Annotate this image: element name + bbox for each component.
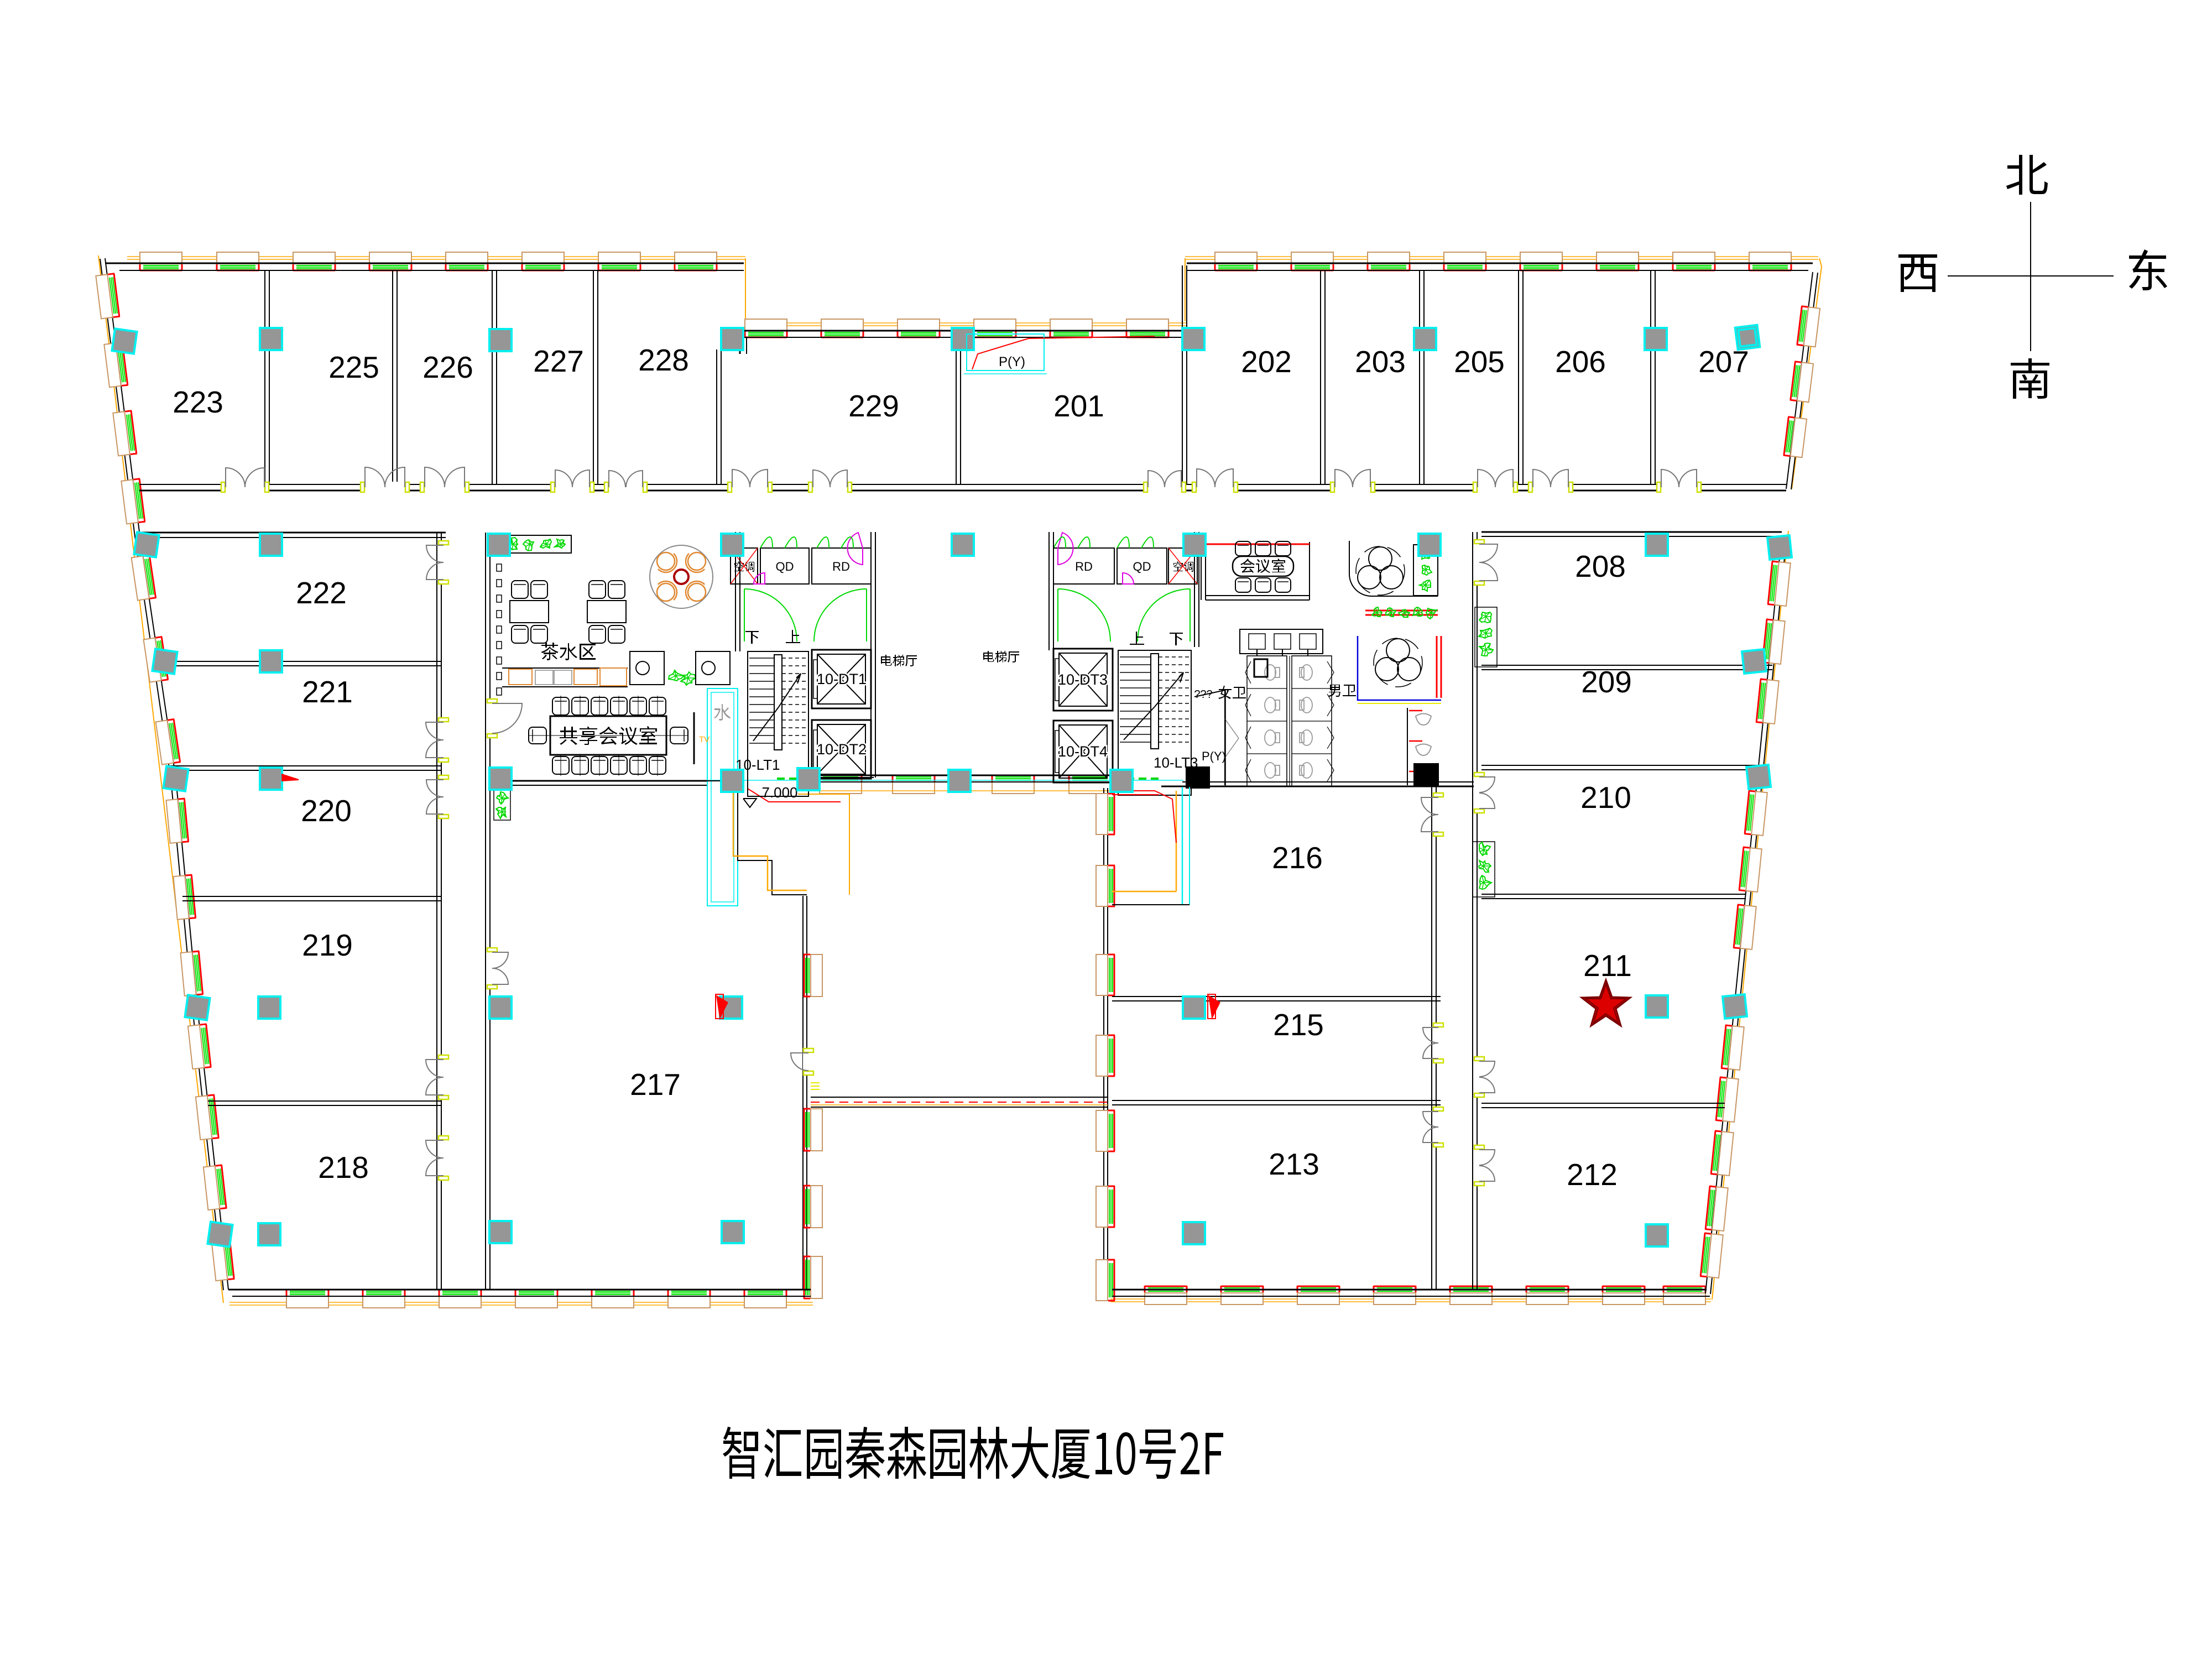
svg-text:10-DT3: 10-DT3 [1058, 671, 1108, 688]
svg-text:211: 211 [1583, 948, 1632, 983]
svg-text:223: 223 [173, 385, 223, 419]
svg-text:216: 216 [1272, 841, 1323, 875]
svg-text:208: 208 [1575, 549, 1626, 583]
svg-text:205: 205 [1454, 345, 1505, 379]
svg-text:TV: TV [699, 735, 709, 744]
svg-text:217: 217 [630, 1067, 681, 1102]
svg-text:10-DT2: 10-DT2 [817, 741, 867, 758]
svg-text:203: 203 [1355, 345, 1406, 379]
svg-text:???: ??? [1194, 688, 1212, 701]
svg-text:226: 226 [422, 350, 473, 384]
svg-text:228: 228 [638, 343, 689, 377]
svg-text:10-DT1: 10-DT1 [817, 671, 867, 687]
svg-text:210: 210 [1580, 780, 1631, 815]
svg-text:209: 209 [1581, 665, 1632, 699]
svg-text:215: 215 [1273, 1008, 1324, 1042]
svg-text:10-DT4: 10-DT4 [1058, 743, 1108, 760]
svg-text:212: 212 [1567, 1157, 1618, 1192]
svg-text:222: 222 [296, 576, 347, 610]
svg-text:7.000: 7.000 [761, 784, 797, 801]
svg-text:221: 221 [302, 675, 353, 709]
svg-text:QD: QD [776, 560, 794, 573]
svg-text:201: 201 [1053, 389, 1104, 423]
svg-text:207: 207 [1698, 345, 1749, 379]
svg-text:RD: RD [1075, 560, 1093, 573]
svg-text:227: 227 [533, 344, 584, 378]
svg-text:220: 220 [301, 794, 352, 828]
svg-text:206: 206 [1555, 345, 1606, 379]
svg-text:RD: RD [832, 560, 850, 573]
svg-text:213: 213 [1269, 1147, 1319, 1181]
svg-text:225: 225 [328, 350, 379, 384]
svg-text:P(Y): P(Y) [1202, 749, 1226, 763]
svg-text:P(Y): P(Y) [999, 354, 1025, 369]
svg-text:229: 229 [848, 389, 899, 423]
svg-text:202: 202 [1241, 345, 1292, 379]
svg-text:218: 218 [318, 1150, 369, 1185]
svg-text:QD: QD [1133, 560, 1151, 573]
svg-text:219: 219 [302, 928, 353, 962]
